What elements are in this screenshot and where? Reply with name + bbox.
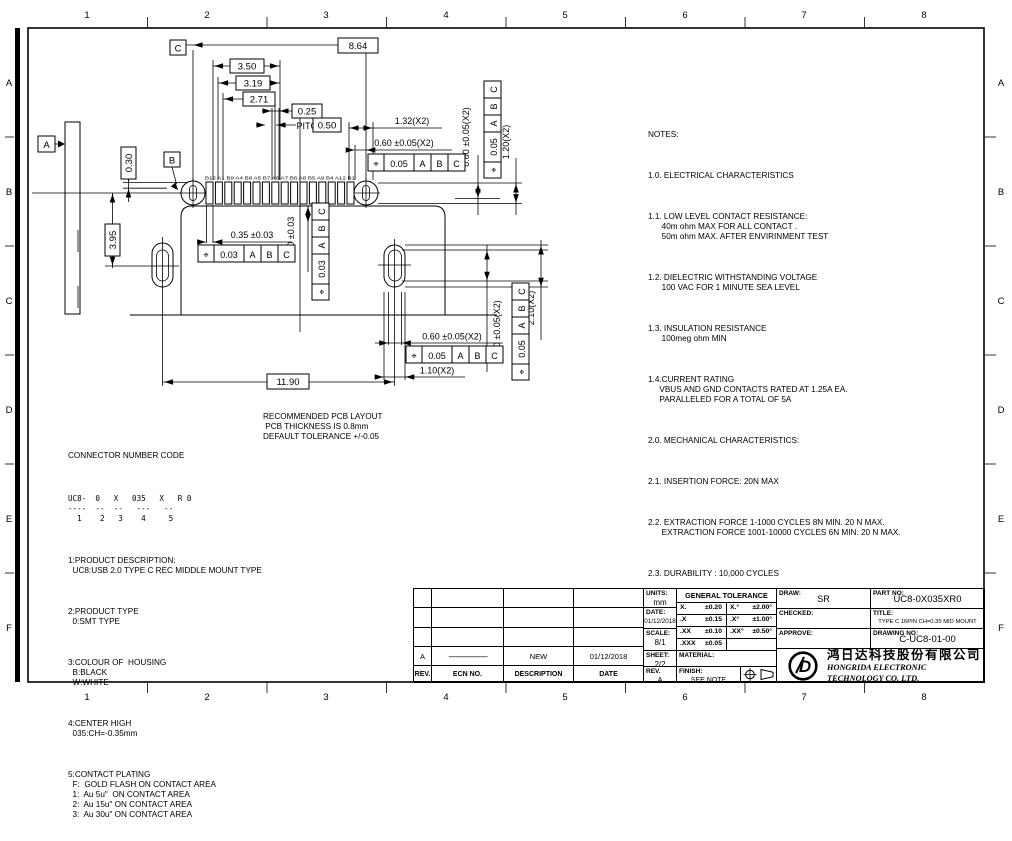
note-item: 2.2. EXTRACTION FORCE 1-1000 CYCLES 8N M… [648,518,984,538]
svg-text:A: A [489,120,499,126]
zone-col-label: 5 [562,10,567,21]
svg-text:C: C [517,288,527,295]
dim-0-60-top: 0.60 ±0.05(X2) [374,138,433,148]
tolerance-cell: .XXX±0.05 [677,639,727,651]
notes-title: NOTES: [648,130,984,140]
note-item: 1.2. DIELECTRIC WITHSTANDING VOLTAGE 100… [648,273,984,293]
title-cell: TITLE:TYPE C 16PIN CH=0.35 MID MOUNT TYP… [871,609,985,629]
zone-row-label: D [998,405,1005,416]
svg-text:A: A [317,242,327,248]
connector-number-code-block: CONNECTOR NUMBER CODE UC8- 0 X 035 X R 0… [68,431,408,841]
pin-labels: B12 A1 B9 A4 B8 A5 B7 A6 A7 B6 A8 B5 A9 … [205,176,356,181]
datum-c-flag: C [170,40,186,55]
svg-text:C: C [453,159,460,169]
checked-cell: CHECKED: [777,609,871,629]
svg-text:B: B [317,225,327,231]
zone-col-label: 5 [562,692,567,703]
scale-cell: SCALE:8/1 [644,629,677,651]
svg-text:A: A [457,351,463,361]
description-header: DESCRIPTION [504,666,574,683]
side-view [65,122,80,314]
dim-1-10: 1.10(X2) [420,366,455,376]
code-title: CONNECTOR NUMBER CODE [68,451,408,461]
dim-3-50: 3.50 [238,62,257,73]
draw-cell: DRAW:SR [777,589,871,609]
position-tolerance-frame-lower-right-vertical: ⌖0.05ABC [512,283,529,380]
datum-b-flag: B [164,152,180,190]
svg-text:B: B [436,159,442,169]
datum-a-label: A [43,140,50,151]
svg-text:C: C [491,351,498,361]
rev-empty-cell [574,608,644,628]
rev-empty-cell [414,628,432,647]
rev-empty-cell [574,628,644,647]
company-block: D 鸿日达科技股份有限公司 HONGRIDA ELECTRONIC TECHNO… [777,649,985,683]
note-item: 1.4.CURRENT RATING VBUS AND GND CONTACTS… [648,375,984,405]
position-symbol: ⌖ [373,159,378,169]
boxed-dimensions: 8.64 3.50 3.19 2.71 0.25 PITCH 0.50 11.9… [105,38,378,389]
rev-empty-cell [574,589,644,608]
zone-col-label: 4 [443,692,448,703]
position-symbol: ⌖ [411,351,416,361]
date-cell: DATE:01/12/2018 [644,608,677,629]
rev-empty-cell [432,608,504,628]
approve-cell: APPROVE: [777,629,871,649]
zone-col-label: 6 [682,692,687,703]
zone-row-label: D [6,405,13,416]
rev-empty-cell [432,589,504,608]
code-string: UC8- 0 X 035 X R 0 ---- -- -- --- -- 1 2… [68,494,408,524]
dim-0-60-bottom: 0.60 ±0.05(X2) [422,332,481,342]
zone-col-label: 4 [443,10,448,21]
svg-text:A: A [517,322,527,328]
drawing-sheet: { "zones": { "cols": ["1","2","3","4","5… [0,0,1012,710]
svg-text:0.05: 0.05 [517,340,527,358]
svg-text:B: B [489,103,499,109]
third-angle-projection-icon [742,667,776,682]
zone-row-label: A [6,78,13,89]
svg-text:0.03: 0.03 [317,260,327,278]
position-tolerance-frame-right-vertical: ⌖0.05ABC [484,81,501,178]
company-name-en: HONGRIDA ELECTRONIC TECHNOLOGY CO, LTD. [827,662,984,684]
position-symbol: ⌖ [489,167,499,172]
dim-3-95: 3.95 [108,231,119,250]
zone-row-label: E [6,514,12,525]
svg-text:0.05: 0.05 [489,138,499,156]
tolerance-cell: .XX°±0.50° [727,627,777,639]
code-item: 1:PRODUCT DESCRIPTION: UC8:USB 2.0 TYPE … [68,556,408,576]
dim-0-25: 0.25 [298,107,317,118]
code-item: 4:CENTER HIGH 035:CH=-0.35mm [68,719,408,739]
title-block: A ————— NEW 01/12/2018 REV. ECN NO. DESC… [413,588,984,682]
projection-symbols-cell [741,667,777,683]
zone-row-label: A [998,78,1005,89]
svg-text:C: C [489,86,499,93]
zone-row-label: E [998,514,1004,525]
position-symbol: ⌖ [517,369,527,374]
general-tolerance-header: GENERAL TOLERANCE [677,589,777,603]
drawing-no-cell: DRAWING NO:C-UC8-01-00 [871,629,985,649]
company-name-cn: 鸿日达科技股份有限公司 [827,649,984,662]
zone-row-label: B [998,187,1004,198]
date-header: DATE [574,666,644,683]
position-tolerance-frame-left: ⌖0.03ABC [198,245,295,262]
zone-col-label: 7 [801,10,806,21]
svg-text:B: B [266,250,272,260]
notes-block: NOTES: 1.0. ELECTRICAL CHARACTERISTICS 1… [648,110,984,641]
zone-row-label: F [6,623,12,634]
position-tolerance-frame-bottom: ⌖0.05ABC [406,346,503,363]
datum-b-label: B [169,156,175,167]
datum-a-flag: A [38,136,65,152]
rev-empty-cell [504,628,574,647]
rev-empty-cell [504,589,574,608]
position-symbol: ⌖ [317,289,327,294]
zone-col-label: 8 [921,10,926,21]
rev-value-cell: A [414,647,432,666]
ecn-header: ECN NO. [432,666,504,683]
tolerance-cell: .XX±0.10 [677,627,727,639]
zone-col-label: 1 [84,10,89,21]
part-no-cell: PART NO:UC8-0X035XR0 [871,589,985,609]
note-item: 1.1. LOW LEVEL CONTACT RESISTANCE: 40m o… [648,212,984,242]
svg-text:0.05: 0.05 [390,159,408,169]
tolerance-cell: .X°±1.00° [727,615,777,627]
rev-cell: REV.A [644,667,677,683]
date-value-cell: 01/12/2018 [574,647,644,666]
contact-pads: B12 A1 B9 A4 B8 A5 B7 A6 A7 B6 A8 B5 A9 … [205,176,356,205]
svg-text:A: A [249,250,255,260]
zone-col-label: 8 [921,692,926,703]
rev-empty-cell [504,608,574,628]
svg-text:B: B [474,351,480,361]
svg-text:0.03: 0.03 [220,250,238,260]
zone-col-label: 3 [323,10,328,21]
dim-2-71: 2.71 [250,95,269,106]
oval-pad-left [146,237,179,293]
svg-text:0.05: 0.05 [428,351,446,361]
dim-3-19: 3.19 [244,79,263,90]
rev-header: REV. [414,666,432,683]
note-item: 2.0. MECHANICAL CHARACTERISTICS: [648,436,984,446]
note-item: 1.3. INSULATION RESISTANCE 100meg ohm MI… [648,324,984,344]
tolerance-cell: X.±0.20 [677,603,727,615]
zone-col-label: 2 [204,10,209,21]
position-symbol: ⌖ [203,250,208,260]
sheet-cell: SHEET:2/2 [644,651,677,667]
code-item: 2:PRODUCT TYPE 0:SMT TYPE [68,607,408,627]
through-hole-right [352,178,380,208]
finish-cell: FINISH:SEE NOTE [677,667,741,683]
svg-text:C: C [317,208,327,215]
dim-11-90: 11.90 [276,377,299,388]
zone-row-label: B [6,187,12,198]
note-item: 2.1. INSERTION FORCE: 20N MAX [648,477,984,487]
ecn-value-cell: ————— [432,647,504,666]
pcb-layout-drawing: A B12 A1 B9 A4 B8 A5 B7 A6 A7 B6 A8 B5 A… [32,38,548,389]
note-item: 2.3. DURABILITY : 10,000 CYCLES [648,569,984,579]
rev-empty-cell [414,608,432,628]
svg-text:D: D [799,657,811,676]
svg-text:A: A [419,159,425,169]
dim-1-20: 1.20(X2) [501,125,511,160]
zone-col-label: 7 [801,692,806,703]
oval-pad-right [378,239,411,293]
units-cell: UNITS:mm [644,589,677,608]
zone-col-label: 6 [682,10,687,21]
dim-8-64: 8.64 [349,41,368,52]
rev-empty-cell [432,628,504,647]
position-tolerance-frame-top: ⌖0.05ABC [368,154,465,171]
position-tolerance-frame-center-vertical: ⌖0.03ABC [312,203,329,300]
zone-row-label: F [998,623,1004,634]
dim-0-35: 0.35 ±0.03 [231,230,273,240]
rev-empty-cell [414,589,432,608]
dim-0-50-pitch: 0.50 [318,121,337,132]
svg-text:C: C [283,250,290,260]
dim-1-32: 1.32(X2) [395,116,430,126]
svg-text:B: B [517,305,527,311]
dim-0-30: 0.30 [124,154,135,173]
tolerance-cell: .X±0.15 [677,615,727,627]
zone-row-label: C [6,296,13,307]
code-item: 5:CONTACT PLATING F: GOLD FLASH ON CONTA… [68,770,408,820]
company-logo: D [787,650,819,682]
description-value-cell: NEW [504,647,574,666]
datum-c-label: C [175,44,182,55]
zone-row-label: C [998,296,1005,307]
note-item: 1.0. ELECTRICAL CHARACTERISTICS [648,171,984,181]
tolerance-cell: X.°±2.00° [727,603,777,615]
material-cell: MATERIAL: [677,651,777,667]
code-item: 3:COLOUR OF HOUSING B:BLACK W:WHITE [68,658,408,688]
tolerance-cell-empty [727,639,777,651]
